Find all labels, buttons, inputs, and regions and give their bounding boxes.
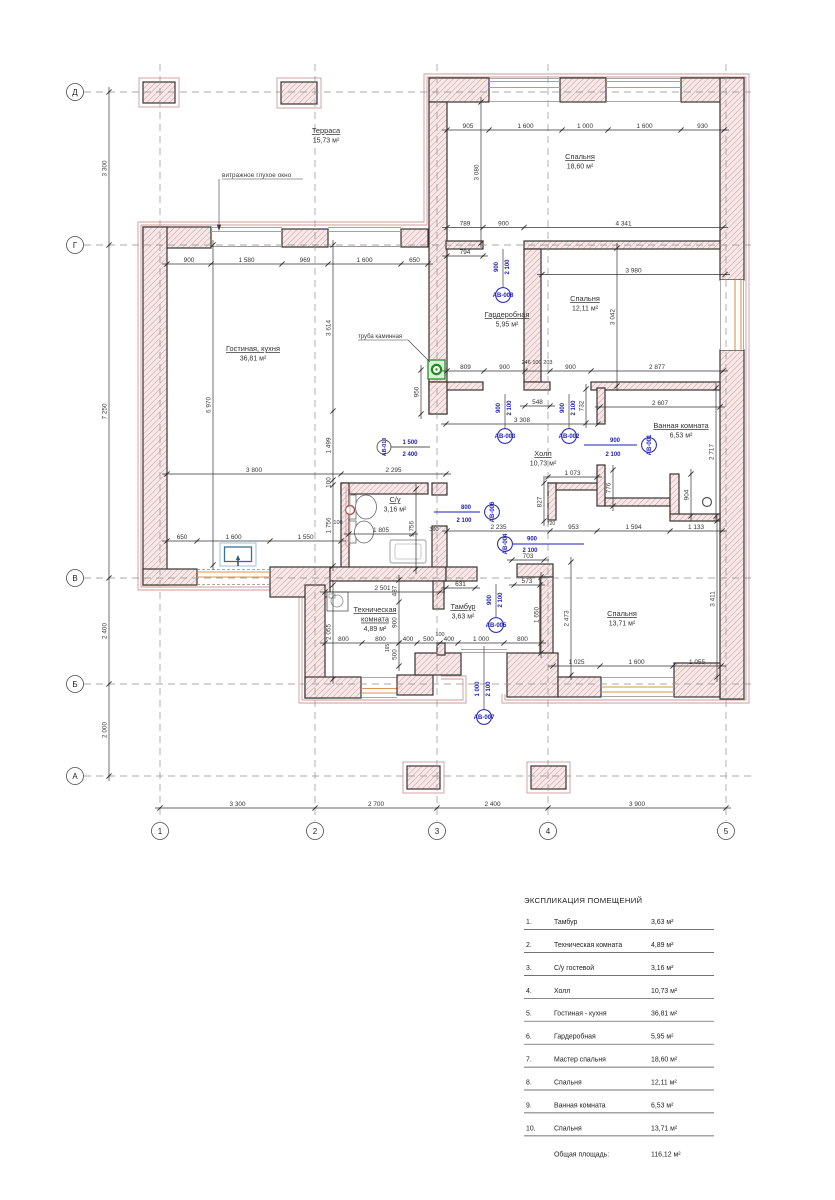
svg-text:3 614: 3 614 — [326, 320, 333, 336]
svg-text:ЭКСПЛИКАЦИЯ ПОМЕЩЕНИЙ: ЭКСПЛИКАЦИЯ ПОМЕЩЕНИЙ — [524, 896, 642, 905]
svg-text:3 300: 3 300 — [102, 160, 109, 176]
svg-text:6 970: 6 970 — [206, 397, 213, 413]
svg-text:548: 548 — [532, 399, 543, 406]
svg-text:400: 400 — [444, 636, 455, 643]
svg-text:3,63 м²: 3,63 м² — [452, 614, 475, 621]
svg-text:Ванная комната: Ванная комната — [554, 1102, 606, 1109]
svg-text:100: 100 — [333, 520, 342, 526]
svg-text:900: 900 — [498, 220, 509, 227]
svg-text:809: 809 — [460, 364, 471, 371]
svg-text:АВ-006: АВ-006 — [490, 501, 496, 522]
svg-text:3 042: 3 042 — [610, 309, 617, 325]
svg-text:Гостиная - кухня: Гостиная - кухня — [554, 1011, 607, 1018]
svg-text:АВ-003: АВ-003 — [495, 434, 516, 440]
svg-text:900: 900 — [565, 364, 576, 371]
svg-text:Тамбур: Тамбур — [554, 918, 578, 926]
svg-text:900: 900 — [499, 364, 510, 371]
svg-text:969: 969 — [300, 257, 311, 264]
svg-text:Г: Г — [73, 241, 78, 250]
svg-text:500: 500 — [392, 649, 399, 660]
svg-text:2 235: 2 235 — [491, 524, 507, 531]
svg-text:36,81 м²: 36,81 м² — [240, 356, 267, 363]
svg-text:4,89 м²: 4,89 м² — [651, 942, 674, 949]
svg-text:900: 900 — [560, 402, 566, 413]
svg-text:6,53 м²: 6,53 м² — [651, 1102, 674, 1109]
svg-text:1 756: 1 756 — [409, 521, 416, 537]
svg-text:1 805: 1 805 — [373, 527, 389, 534]
svg-text:390: 390 — [429, 527, 438, 533]
svg-text:1: 1 — [158, 827, 163, 836]
svg-text:2 877: 2 877 — [649, 364, 665, 371]
svg-text:900: 900 — [184, 257, 195, 264]
svg-text:Техническая комната: Техническая комната — [554, 942, 622, 949]
svg-text:2 473: 2 473 — [564, 610, 571, 626]
svg-text:2 501: 2 501 — [375, 585, 391, 592]
svg-text:5,95 м²: 5,95 м² — [651, 1034, 674, 1041]
svg-text:100: 100 — [435, 632, 444, 638]
svg-text:631: 631 — [455, 581, 466, 588]
svg-text:Холл: Холл — [554, 988, 570, 995]
svg-text:900: 900 — [392, 617, 399, 628]
svg-text:Гардеробная: Гардеробная — [485, 310, 530, 319]
svg-text:3 411: 3 411 — [710, 591, 717, 607]
svg-text:5,95 м²: 5,95 м² — [496, 322, 519, 329]
svg-text:Гардеробная: Гардеробная — [554, 1033, 596, 1041]
svg-text:3,63 м²: 3,63 м² — [651, 919, 674, 926]
svg-text:Мастер спальня: Мастер спальня — [554, 1057, 606, 1064]
svg-text:2 295: 2 295 — [386, 467, 402, 474]
svg-text:1 756: 1 756 — [326, 517, 333, 533]
svg-text:Техническая: Техническая — [353, 605, 396, 614]
svg-text:246 100 203: 246 100 203 — [521, 360, 552, 366]
svg-text:2 607: 2 607 — [652, 400, 668, 407]
svg-text:1 499: 1 499 — [326, 437, 333, 453]
svg-text:904: 904 — [684, 489, 691, 500]
svg-text:5: 5 — [724, 827, 729, 836]
svg-text:3.: 3. — [526, 965, 532, 972]
svg-text:В: В — [72, 574, 77, 583]
svg-text:4: 4 — [546, 827, 551, 836]
svg-text:732: 732 — [579, 400, 586, 411]
svg-text:776: 776 — [606, 482, 613, 493]
svg-text:2 100: 2 100 — [498, 592, 504, 608]
svg-text:Гостиная, кухня: Гостиная, кухня — [226, 344, 280, 353]
svg-text:3 080: 3 080 — [474, 164, 481, 180]
svg-text:8.: 8. — [526, 1080, 532, 1087]
svg-text:650: 650 — [177, 534, 188, 541]
svg-text:1 600: 1 600 — [629, 659, 645, 666]
svg-text:1 600: 1 600 — [357, 257, 373, 264]
svg-text:3: 3 — [435, 827, 440, 836]
svg-text:1 600: 1 600 — [637, 123, 653, 130]
svg-text:1.: 1. — [526, 919, 532, 926]
svg-text:10,73 м²: 10,73 м² — [651, 988, 678, 995]
svg-text:400: 400 — [403, 636, 414, 643]
svg-text:2 100: 2 100 — [605, 452, 621, 458]
svg-text:Д: Д — [72, 88, 78, 97]
svg-text:2 000: 2 000 — [102, 722, 109, 738]
svg-text:4,89 м²: 4,89 м² — [364, 626, 387, 633]
svg-text:АВ-007: АВ-007 — [474, 715, 495, 721]
svg-text:АВ-001: АВ-001 — [647, 434, 653, 455]
svg-text:1 594: 1 594 — [626, 524, 642, 531]
svg-text:АВ-010: АВ-010 — [382, 438, 388, 457]
svg-text:1 133: 1 133 — [688, 524, 704, 531]
svg-text:витражное глухое окно: витражное глухое окно — [222, 172, 292, 179]
svg-text:Терраса: Терраса — [312, 126, 341, 135]
svg-text:7.: 7. — [526, 1057, 532, 1064]
svg-text:2.: 2. — [526, 942, 532, 949]
svg-text:1 500: 1 500 — [402, 440, 418, 446]
svg-text:650: 650 — [409, 257, 420, 264]
svg-text:2 700: 2 700 — [368, 801, 384, 808]
svg-text:Спальня: Спальня — [607, 609, 637, 618]
svg-text:3,16 м²: 3,16 м² — [384, 507, 407, 514]
svg-text:1 580: 1 580 — [239, 257, 255, 264]
svg-text:1 600: 1 600 — [518, 123, 534, 130]
svg-text:12,11 м²: 12,11 м² — [651, 1080, 677, 1087]
svg-text:2 400: 2 400 — [402, 452, 418, 458]
svg-text:1 650: 1 650 — [534, 607, 541, 623]
svg-text:900: 900 — [610, 438, 621, 444]
svg-text:АВ-004: АВ-004 — [503, 533, 509, 554]
svg-text:2 400: 2 400 — [485, 801, 501, 808]
svg-text:3 300: 3 300 — [230, 801, 246, 808]
svg-text:36,81 м²: 36,81 м² — [651, 1011, 678, 1018]
svg-text:6,53 м²: 6,53 м² — [670, 433, 693, 440]
svg-text:794: 794 — [460, 249, 471, 256]
svg-text:18,60 м²: 18,60 м² — [651, 1057, 678, 1064]
svg-text:930: 930 — [697, 123, 708, 130]
svg-text:Ванная комната: Ванная комната — [653, 421, 709, 430]
svg-text:Тамбур: Тамбур — [450, 602, 475, 611]
svg-text:116,12 м²: 116,12 м² — [651, 1151, 681, 1158]
svg-text:905: 905 — [463, 123, 474, 130]
svg-text:15,73 м²: 15,73 м² — [313, 138, 340, 145]
svg-text:10,73 м²: 10,73 м² — [530, 461, 557, 468]
svg-text:900: 900 — [527, 537, 538, 543]
svg-text:1 550: 1 550 — [298, 534, 314, 541]
svg-text:Спальня: Спальня — [554, 1080, 582, 1087]
svg-text:900: 900 — [487, 594, 493, 605]
svg-text:Спальня: Спальня — [565, 152, 595, 161]
svg-text:10.: 10. — [526, 1125, 536, 1132]
svg-text:3 980: 3 980 — [626, 267, 642, 274]
svg-text:3,16 м²: 3,16 м² — [651, 965, 674, 972]
svg-text:827: 827 — [537, 496, 544, 507]
svg-text:12,11 м²: 12,11 м² — [572, 306, 599, 313]
svg-text:1 000: 1 000 — [475, 681, 481, 697]
svg-text:2 100: 2 100 — [486, 681, 492, 697]
svg-text:800: 800 — [338, 636, 349, 643]
svg-text:500: 500 — [423, 636, 434, 643]
svg-text:Спальня: Спальня — [570, 294, 600, 303]
svg-text:165: 165 — [385, 644, 391, 653]
svg-text:1 055: 1 055 — [689, 659, 705, 666]
svg-text:789: 789 — [460, 220, 471, 227]
svg-text:1 600: 1 600 — [226, 534, 242, 541]
svg-text:1 073: 1 073 — [565, 470, 581, 477]
svg-text:13,71 м²: 13,71 м² — [651, 1125, 678, 1132]
svg-text:2 100: 2 100 — [456, 518, 472, 524]
svg-text:100: 100 — [326, 477, 333, 488]
svg-text:800: 800 — [461, 505, 472, 511]
svg-text:7 250: 7 250 — [102, 403, 109, 419]
svg-text:800: 800 — [517, 636, 528, 643]
svg-text:2 100: 2 100 — [507, 400, 513, 416]
svg-text:1 000: 1 000 — [473, 636, 489, 643]
svg-text:487: 487 — [392, 585, 399, 596]
svg-text:2 400: 2 400 — [102, 623, 109, 639]
svg-text:2: 2 — [313, 827, 318, 836]
svg-text:Общая площадь:: Общая площадь: — [554, 1150, 609, 1158]
svg-text:АВ-008: АВ-008 — [493, 293, 514, 299]
svg-text:800: 800 — [375, 636, 386, 643]
svg-text:А: А — [72, 772, 78, 781]
svg-text:2 100: 2 100 — [571, 400, 577, 416]
svg-text:труба каминная: труба каминная — [358, 334, 402, 340]
svg-text:АВ-002: АВ-002 — [559, 434, 580, 440]
svg-text:2 100: 2 100 — [505, 259, 511, 275]
svg-text:900: 900 — [496, 402, 502, 413]
svg-text:18,60 м²: 18,60 м² — [567, 164, 594, 171]
svg-text:4.: 4. — [526, 988, 532, 995]
svg-text:950: 950 — [414, 386, 421, 397]
svg-text:1 000: 1 000 — [577, 123, 593, 130]
svg-text:АВ-005: АВ-005 — [486, 623, 507, 629]
svg-text:900: 900 — [494, 261, 500, 272]
svg-text:С/у: С/у — [389, 495, 400, 504]
svg-text:С/у гостевой: С/у гостевой — [554, 964, 594, 972]
svg-text:Б: Б — [72, 680, 77, 689]
svg-text:комната: комната — [361, 615, 390, 624]
svg-text:720: 720 — [547, 521, 556, 527]
svg-text:5.: 5. — [526, 1011, 532, 1018]
svg-text:573: 573 — [522, 578, 533, 585]
svg-text:3 900: 3 900 — [629, 801, 645, 808]
svg-text:6.: 6. — [526, 1034, 532, 1041]
svg-text:2 717: 2 717 — [709, 444, 716, 460]
svg-text:953: 953 — [568, 524, 579, 531]
svg-text:Холл: Холл — [534, 449, 551, 458]
svg-text:2 100: 2 100 — [522, 548, 538, 554]
svg-text:3 308: 3 308 — [514, 417, 530, 424]
svg-text:4 341: 4 341 — [616, 220, 632, 227]
svg-text:2 055: 2 055 — [326, 624, 333, 640]
svg-text:3 800: 3 800 — [246, 467, 262, 474]
svg-text:13,71 м²: 13,71 м² — [609, 621, 636, 628]
svg-text:9.: 9. — [526, 1102, 532, 1109]
svg-text:Спальня: Спальня — [554, 1125, 582, 1132]
